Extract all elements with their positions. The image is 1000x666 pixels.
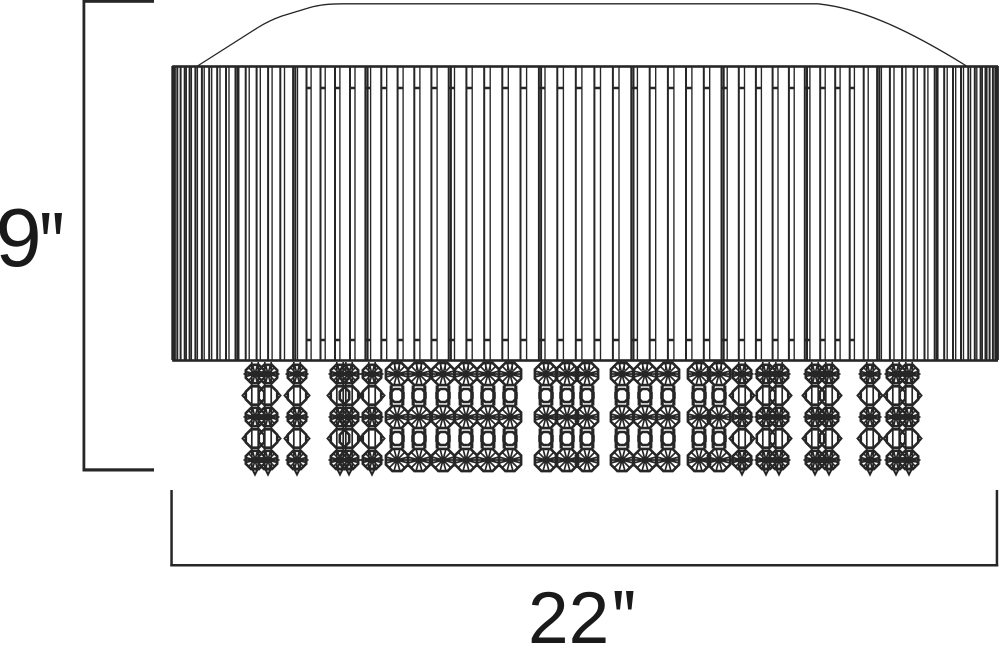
svg-text:22: 22	[528, 578, 609, 659]
svg-text:9: 9	[0, 191, 42, 284]
